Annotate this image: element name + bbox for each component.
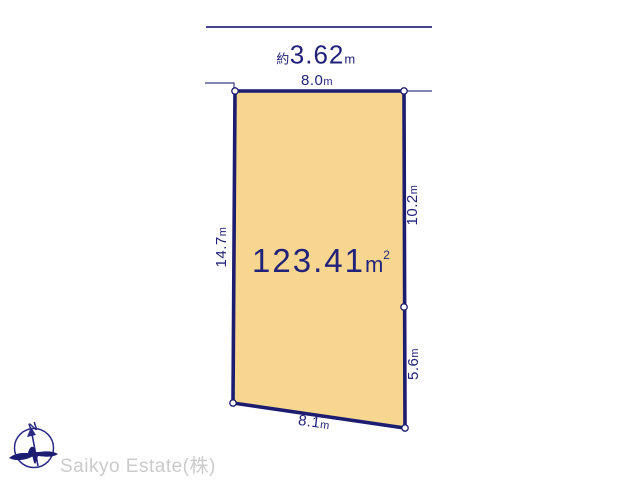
company-name: Saikyo Estate(株) bbox=[60, 451, 216, 478]
left-edge-label: 14.7m bbox=[213, 227, 231, 268]
approx-prefix: 約 bbox=[276, 52, 290, 67]
boundary-point-topright bbox=[401, 88, 407, 94]
area-value: 123.41 bbox=[252, 242, 365, 279]
right-lower-edge-unit: m bbox=[409, 348, 421, 358]
boundary-point-topleft bbox=[232, 88, 238, 94]
road-width-label: 約3.62m bbox=[276, 40, 355, 71]
bottom-edge-value: 8.1 bbox=[297, 412, 322, 432]
right-upper-edge-label: 10.2m bbox=[404, 185, 422, 226]
road-width-value: 3.62 bbox=[290, 40, 345, 70]
left-edge-unit: m bbox=[217, 227, 229, 237]
top-edge-unit: m bbox=[323, 76, 333, 88]
boundary-point-rightmid bbox=[401, 304, 407, 310]
boundary-point-bottomleft bbox=[230, 400, 236, 406]
right-lower-edge-label: 5.6m bbox=[405, 348, 423, 380]
right-lower-edge-value: 5.6 bbox=[405, 358, 422, 380]
left-edge-value: 14.7 bbox=[213, 236, 230, 267]
area-label: 123.41m2 bbox=[252, 242, 390, 280]
area-unit-superscript: 2 bbox=[383, 248, 390, 262]
bottom-edge-unit: m bbox=[319, 419, 330, 432]
area-unit: m bbox=[365, 252, 383, 277]
top-edge-value: 8.0 bbox=[301, 72, 323, 89]
top-edge-label: 8.0m bbox=[301, 72, 333, 90]
road-width-unit: m bbox=[344, 52, 355, 67]
boundary-point-bottomright bbox=[402, 425, 408, 431]
compass-north-letter: N bbox=[27, 420, 40, 435]
compass-north-icon: N bbox=[8, 420, 64, 476]
land-plot-diagram: 約3.62m 8.0m 14.7m 10.2m 5.6m 8.1m 123.41… bbox=[0, 0, 640, 480]
right-upper-edge-value: 10.2 bbox=[404, 194, 421, 225]
topleft-extension-line bbox=[205, 83, 234, 90]
logo-bird-silhouette bbox=[9, 447, 58, 464]
right-upper-edge-unit: m bbox=[408, 185, 420, 195]
